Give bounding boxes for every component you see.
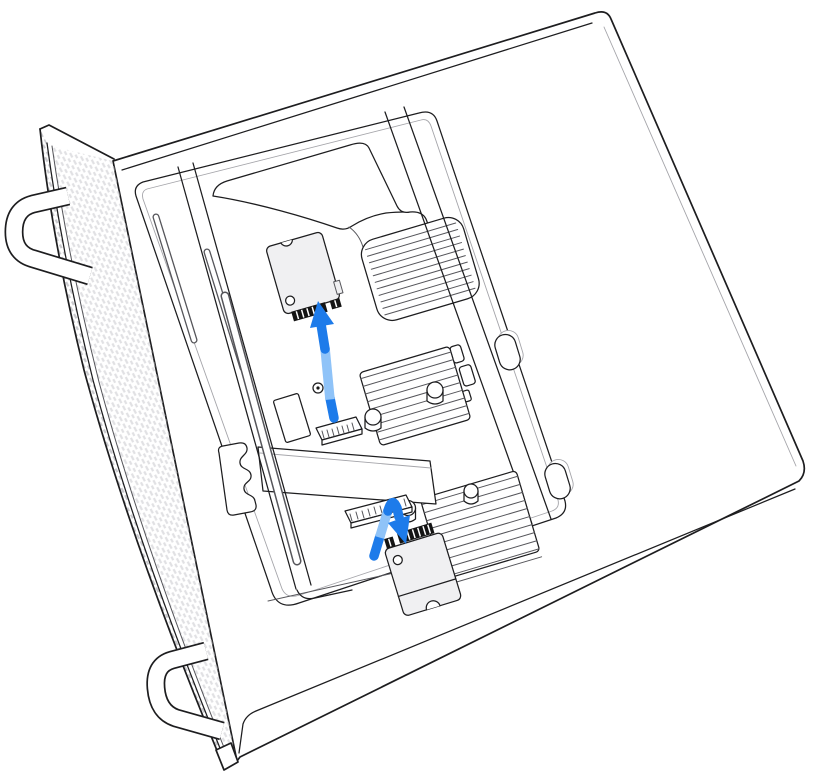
screw [313,383,323,393]
illustration-figure [0,0,816,776]
illustration-canvas [0,0,816,776]
mac-pro-ssd-illustration [0,0,816,776]
